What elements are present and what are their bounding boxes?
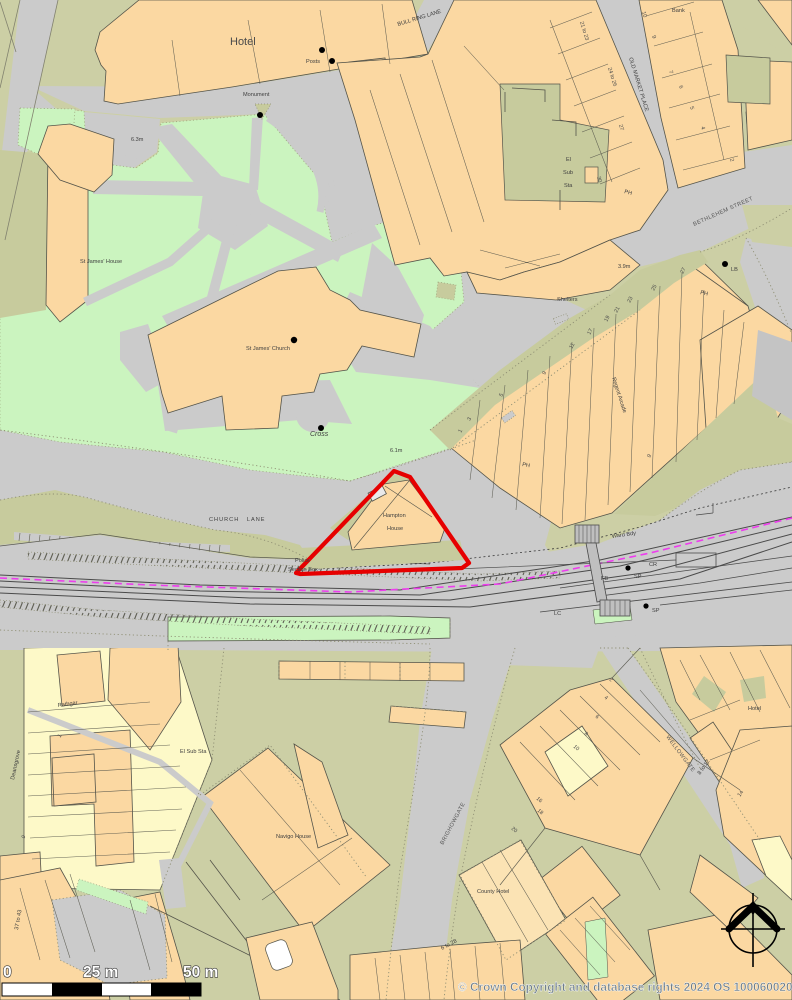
- svg-text:Sta: Sta: [564, 183, 573, 189]
- svg-text:Shelters: Shelters: [557, 297, 578, 303]
- svg-text:SP: SP: [634, 574, 642, 580]
- svg-text:SP: SP: [652, 608, 660, 614]
- svg-text:Monument: Monument: [243, 92, 270, 98]
- svg-text:LB: LB: [731, 267, 738, 273]
- svg-text:County Hotel: County Hotel: [477, 889, 509, 895]
- svg-text:El Sub Sta: El Sub Sta: [180, 749, 207, 755]
- svg-text:House: House: [387, 526, 403, 532]
- svg-text:CR: CR: [649, 562, 657, 568]
- svg-text:6.1m: 6.1m: [390, 448, 403, 454]
- svg-text:Cross: Cross: [310, 431, 329, 438]
- svg-text:0: 0: [3, 964, 12, 981]
- svg-text:Sub: Sub: [563, 170, 573, 176]
- svg-text:FB: FB: [601, 576, 608, 582]
- svg-text:50 m: 50 m: [183, 964, 218, 981]
- svg-text:Bank: Bank: [672, 8, 685, 14]
- svg-text:Posts: Posts: [306, 59, 320, 65]
- svg-text:3.9m: 3.9m: [618, 264, 631, 270]
- svg-text:Hampton: Hampton: [383, 513, 406, 519]
- svg-text:CHURCH LANE: CHURCH LANE: [209, 517, 266, 523]
- svg-text:Section Box: Section Box: [288, 567, 318, 573]
- svg-text:Hotel: Hotel: [230, 36, 256, 48]
- svg-text:St James' House: St James' House: [80, 259, 122, 265]
- svg-text:El: El: [566, 157, 571, 163]
- svg-text:25 m: 25 m: [83, 964, 118, 981]
- svg-text:St James' Church: St James' Church: [246, 346, 290, 352]
- svg-text:Navigo House: Navigo House: [276, 834, 311, 840]
- svg-text:© Crown Copyright and database: © Crown Copyright and database rights 20…: [458, 980, 792, 994]
- svg-text:6.3m: 6.3m: [131, 137, 144, 143]
- svg-text:LC: LC: [554, 611, 561, 617]
- svg-text:Police: Police: [295, 558, 310, 564]
- svg-text:Hotel: Hotel: [748, 706, 761, 712]
